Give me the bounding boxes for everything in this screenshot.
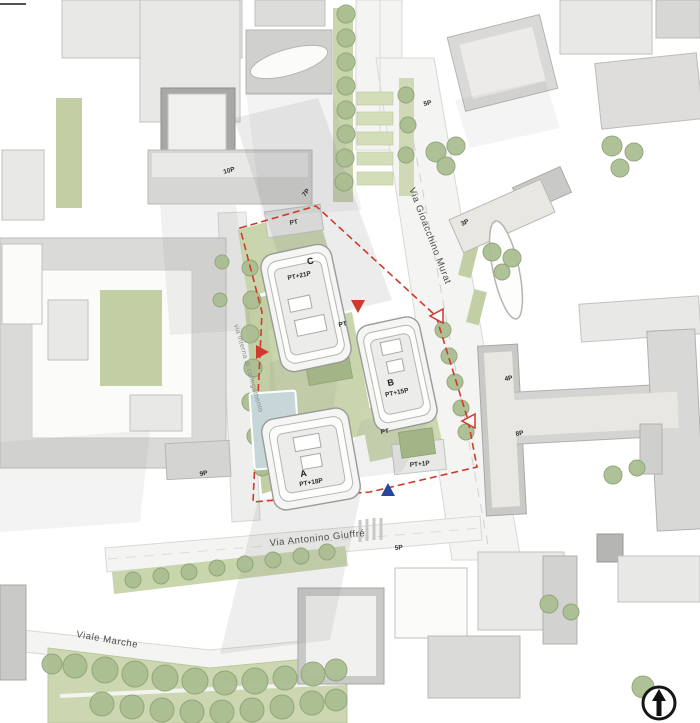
block-left-bottom [0,585,26,680]
block-right-complex [478,329,700,531]
site-plan-svg: C PT+21P B PT+15P A PT+18P [0,0,700,723]
site-plan: C PT+21P B PT+15P A PT+18P [0,0,700,723]
green-strip-left [56,98,82,208]
height-label-pt-top: PT [289,219,298,227]
height-label-5p-bottom: 5P [394,544,403,552]
block-left-edge [2,244,42,324]
height-label-pt-garden: PT [380,428,389,436]
blocks-south [298,534,700,698]
block-left-edge [2,150,44,220]
north-arrow-icon [643,687,675,719]
hedge-south-b [398,428,435,458]
roof-element [300,453,322,469]
tower-a: A PT+18P [260,406,363,512]
roof-element [386,359,404,374]
wing-9p [165,440,231,479]
